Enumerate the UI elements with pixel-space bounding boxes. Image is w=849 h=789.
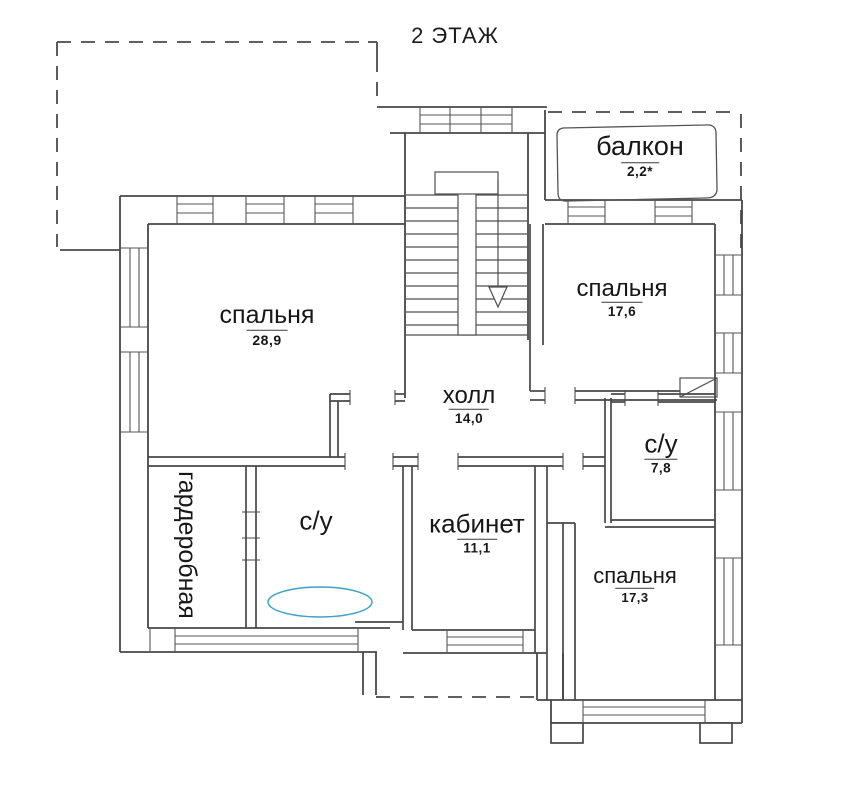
- floor-plan: 2 ЭТАЖ балкон 2,2* спальня 28,9 спальня …: [0, 0, 849, 789]
- room-label-bedroom-right: спальня 17,6: [576, 277, 667, 319]
- room-label-bathroom-right: с/у 7,8: [644, 431, 677, 476]
- room-label-bathroom-left: с/у: [299, 508, 332, 535]
- room-area: 11,1: [457, 538, 497, 555]
- room-name: кабинет: [429, 511, 525, 538]
- room-name: с/у: [644, 431, 677, 458]
- room-area: 2,2*: [621, 162, 659, 179]
- floor-plan-drawing: [0, 0, 849, 789]
- room-label-wardrobe: гардеробная: [173, 471, 199, 619]
- room-name: спальня: [576, 277, 667, 301]
- room-name: гардеробная: [173, 471, 199, 619]
- room-label-balcony: балкон 2,2*: [596, 133, 684, 179]
- staircase: [405, 172, 528, 335]
- floor-title: 2 ЭТАЖ: [411, 23, 499, 49]
- room-name: холл: [443, 384, 496, 408]
- bathtub-ellipse: [268, 587, 372, 617]
- room-area: 28,9: [246, 329, 287, 347]
- room-area: 17,3: [615, 588, 654, 605]
- stairs-down-arrow-icon: [489, 180, 507, 307]
- room-label-bedroom-main: спальня 28,9: [220, 303, 315, 348]
- room-area: 7,8: [645, 458, 677, 475]
- room-area: 14,0: [449, 409, 489, 426]
- room-label-bedroom-bottom: спальня 17,3: [593, 565, 677, 605]
- room-label-study: кабинет 11,1: [429, 511, 525, 556]
- room-name: с/у: [299, 508, 332, 535]
- room-name: спальня: [220, 303, 315, 329]
- roof-outline-solid-corners: [60, 42, 377, 250]
- room-name: спальня: [593, 565, 677, 587]
- room-name: балкон: [596, 133, 684, 161]
- pillars: [551, 723, 732, 743]
- room-label-hall: холл 14,0: [443, 384, 496, 426]
- room-area: 17,6: [602, 302, 642, 319]
